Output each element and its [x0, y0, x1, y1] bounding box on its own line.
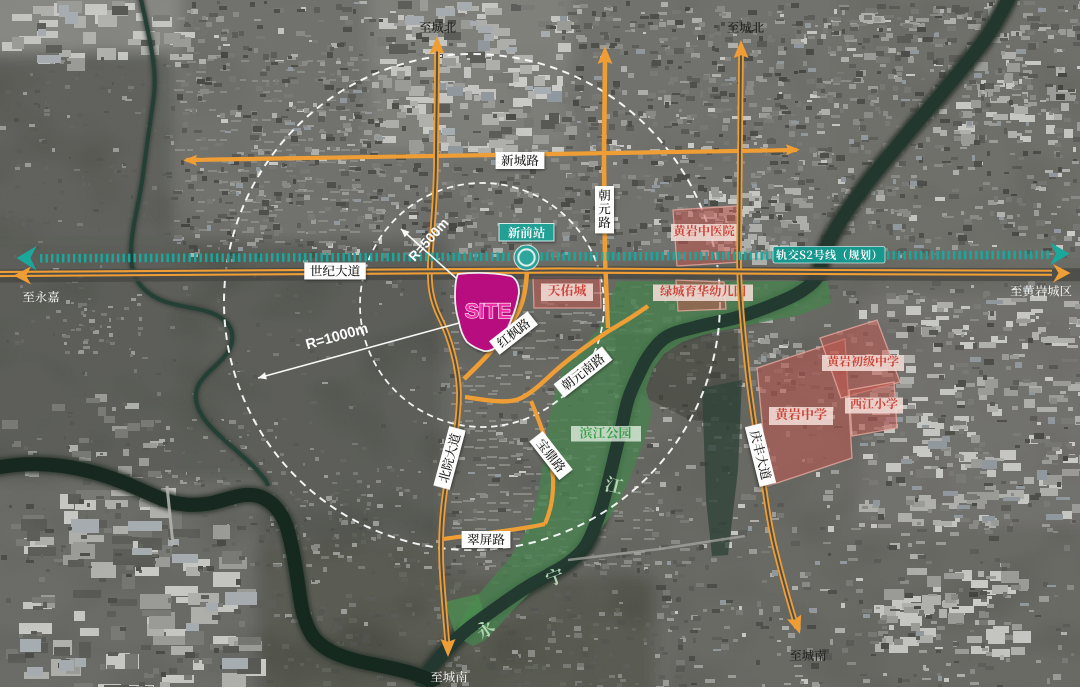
svg-text:SITE: SITE — [465, 299, 512, 323]
